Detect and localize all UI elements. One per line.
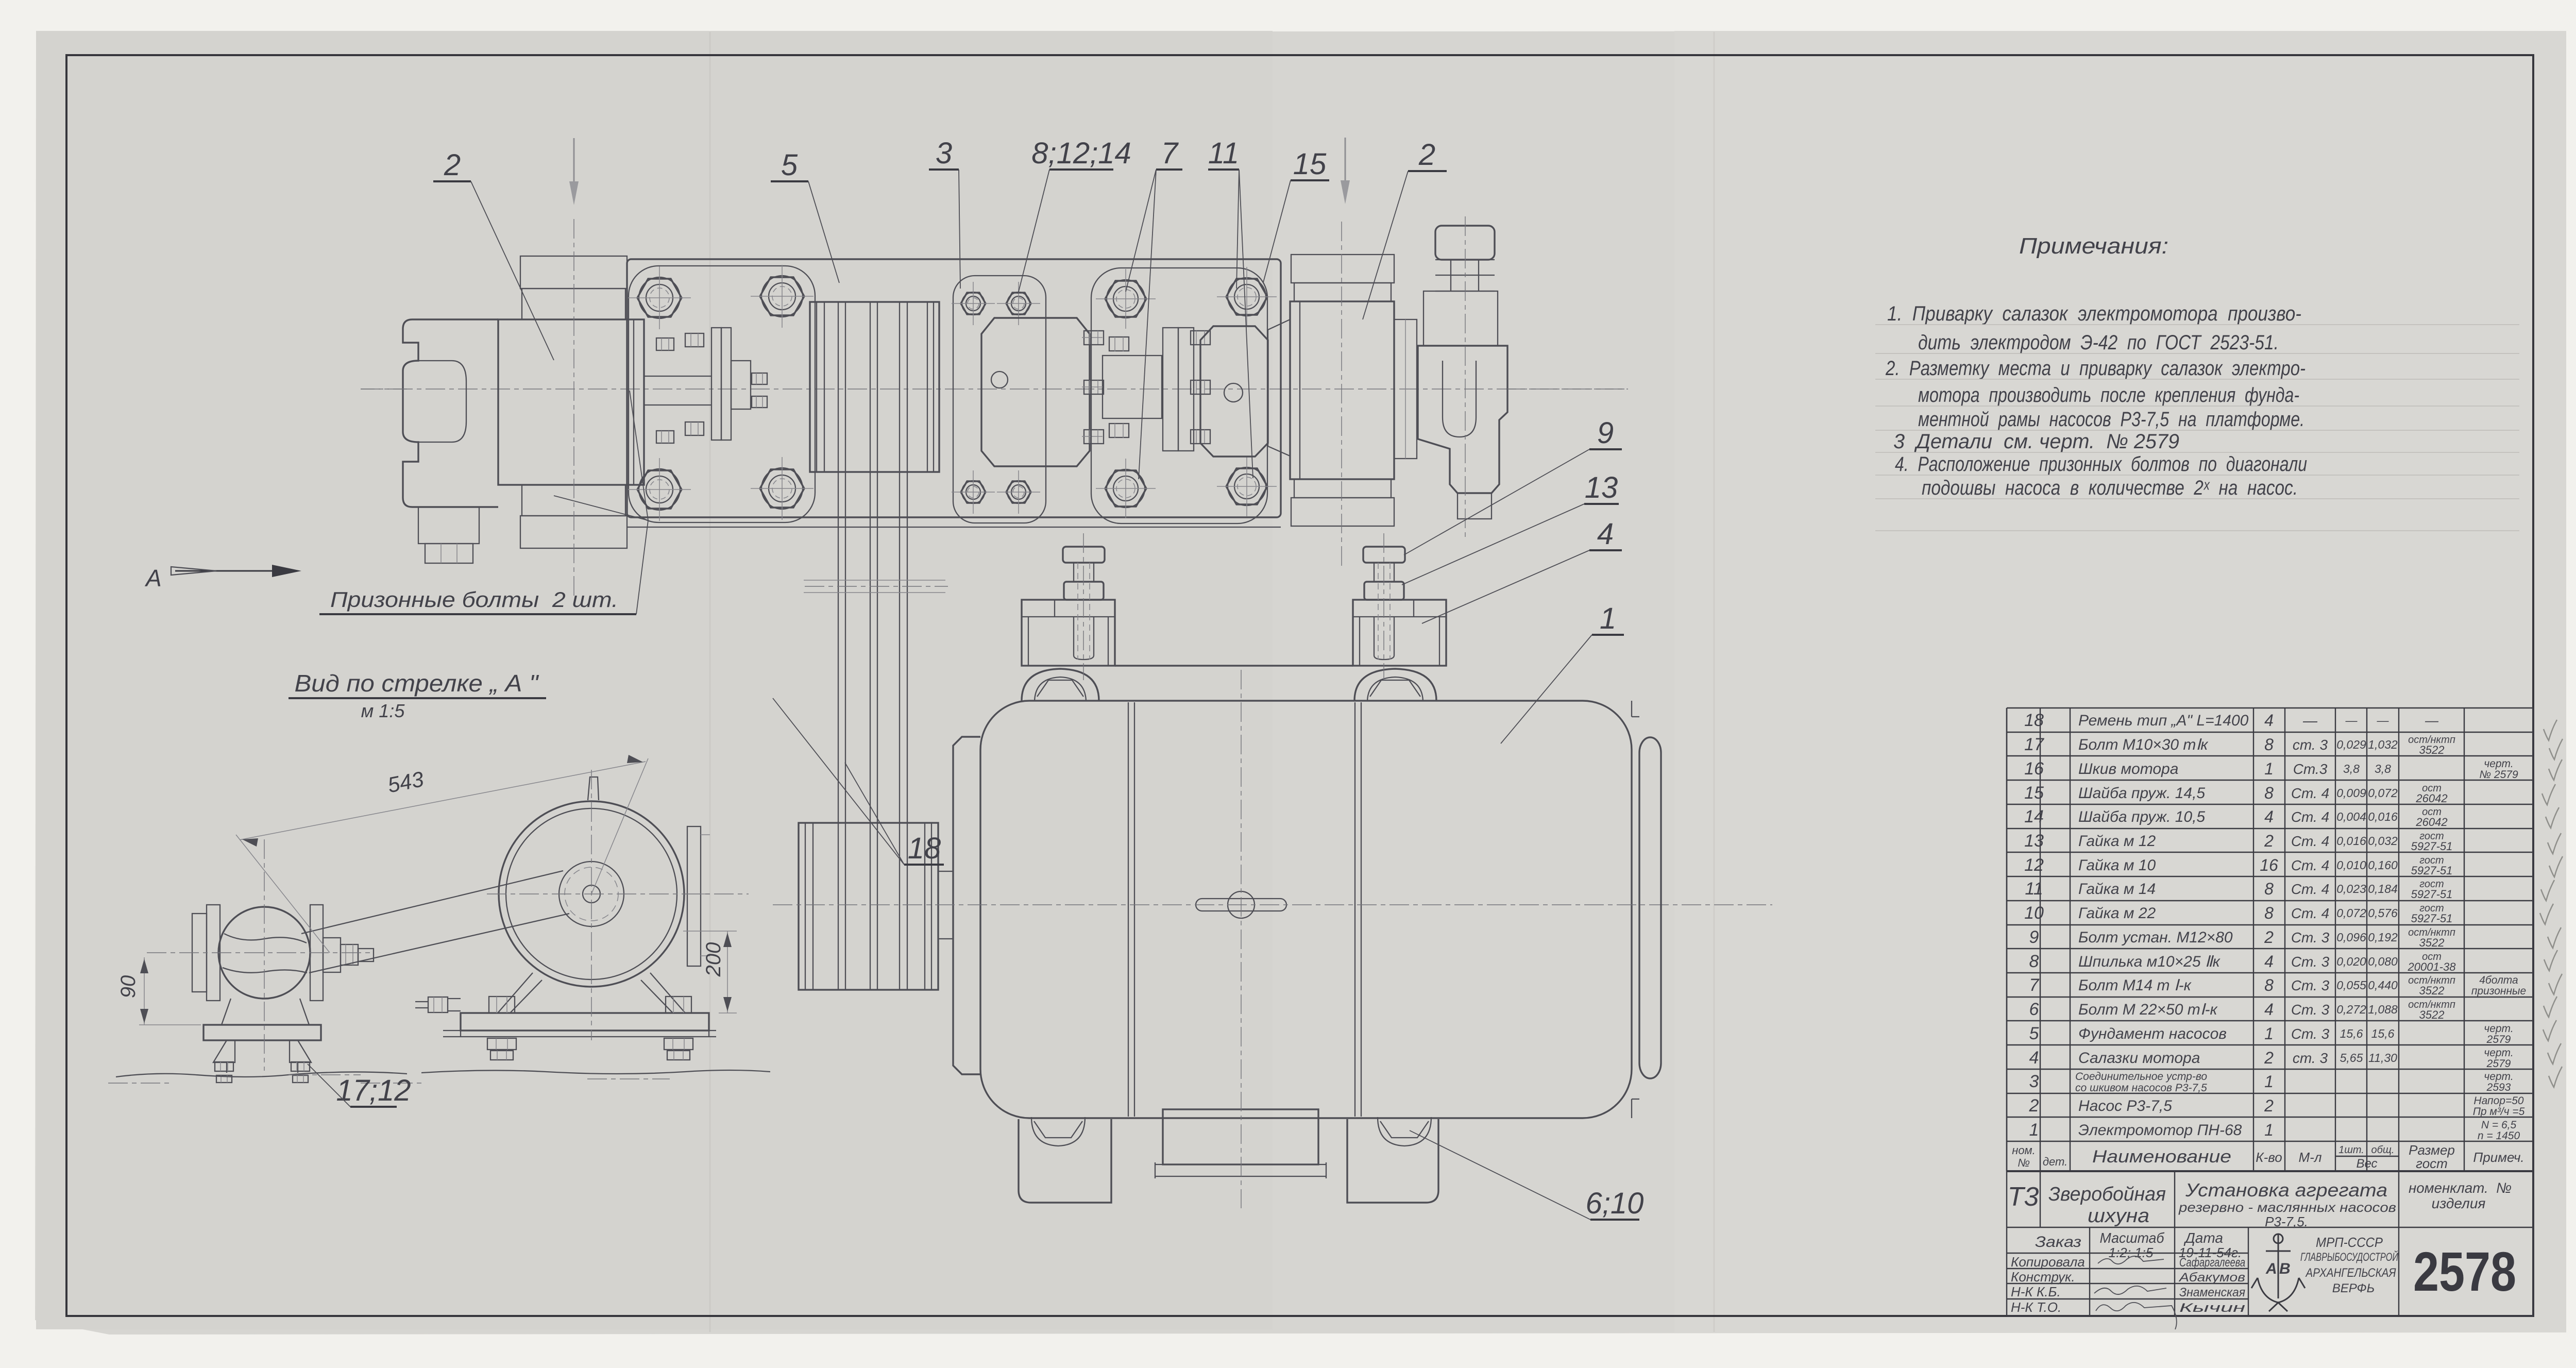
svg-text:3,8: 3,8: [2375, 762, 2391, 775]
svg-text:3: 3: [936, 137, 952, 170]
svg-text:26042: 26042: [2415, 816, 2447, 829]
svg-text:№: №: [2018, 1156, 2030, 1169]
svg-text:Р3-7,5.: Р3-7,5.: [2265, 1214, 2308, 1229]
svg-text:12: 12: [2024, 855, 2044, 875]
svg-text:1: 1: [1600, 602, 1616, 635]
svg-text:0,072: 0,072: [2336, 906, 2366, 920]
svg-text:2579: 2579: [2486, 1058, 2511, 1070]
svg-text:Кычин: Кычин: [2179, 1301, 2245, 1315]
svg-text:Насос Р3-7,5: Насос Р3-7,5: [2078, 1097, 2172, 1114]
svg-text:26042: 26042: [2415, 792, 2447, 805]
svg-text:5,65: 5,65: [2340, 1051, 2363, 1065]
svg-text:Знаменская: Знаменская: [2179, 1286, 2245, 1299]
svg-text:4: 4: [2029, 1048, 2039, 1068]
svg-text:подошвы насоса в количестве: подошвы насоса в количестве 2ˣ на насос.: [1922, 477, 2298, 499]
svg-text:0,055: 0,055: [2336, 978, 2366, 992]
svg-text:М-л: М-л: [2299, 1150, 2322, 1165]
svg-text:8: 8: [2029, 952, 2039, 971]
svg-text:0,016: 0,016: [2368, 810, 2398, 823]
svg-text:Ст. 4: Ст. 4: [2291, 905, 2329, 921]
svg-text:номенклат. №: номенклат. №: [2409, 1180, 2512, 1196]
svg-text:общ.: общ.: [2371, 1144, 2395, 1156]
svg-text:—: —: [2425, 713, 2439, 728]
svg-text:Вес: Вес: [2356, 1157, 2377, 1171]
svg-text:11,30: 11,30: [2368, 1051, 2397, 1065]
svg-text:Ст. 3: Ст. 3: [2291, 1002, 2330, 1018]
svg-text:2. Разметку места и привар: 2. Разметку места и приварку салазок эле…: [1885, 357, 2306, 380]
svg-text:0,440: 0,440: [2368, 978, 2398, 992]
svg-text:Наименование: Наименование: [2092, 1147, 2231, 1167]
svg-text:№ 2579: № 2579: [2479, 769, 2518, 781]
svg-text:0,010: 0,010: [2336, 858, 2366, 872]
svg-text:Примечания:: Примечания:: [2019, 233, 2168, 259]
svg-text:Фундамент насосов: Фундамент насосов: [2078, 1025, 2227, 1042]
svg-text:черт.: черт.: [2484, 758, 2513, 770]
svg-text:со шкивом насосов Р3-7,5: со шкивом насосов Р3-7,5: [2075, 1082, 2207, 1094]
svg-text:Т3: Т3: [2008, 1182, 2039, 1212]
svg-text:4: 4: [2264, 952, 2274, 971]
svg-text:Дата: Дата: [2183, 1230, 2223, 1246]
svg-text:15: 15: [1293, 147, 1327, 181]
svg-text:резервно - маслянных насосов: резервно - маслянных насосов: [2178, 1200, 2396, 1215]
svg-text:15,6: 15,6: [2371, 1027, 2395, 1040]
svg-text:3522: 3522: [2419, 984, 2445, 997]
svg-text:16: 16: [2260, 856, 2278, 874]
svg-text:Болт М 22×50 тⅠ-к: Болт М 22×50 тⅠ-к: [2078, 1001, 2218, 1018]
svg-text:2593: 2593: [2486, 1082, 2511, 1093]
svg-text:6: 6: [2029, 1000, 2039, 1019]
svg-text:2: 2: [2264, 832, 2274, 850]
svg-text:16: 16: [2024, 759, 2044, 779]
svg-text:Пр м³/ч =5: Пр м³/ч =5: [2473, 1106, 2525, 1118]
svg-text:3522: 3522: [2419, 936, 2445, 949]
svg-text:Болт М10×30 тⅠк: Болт М10×30 тⅠк: [2078, 736, 2209, 753]
svg-text:7: 7: [1161, 137, 1179, 170]
svg-text:4: 4: [2264, 807, 2274, 826]
svg-text:—: —: [2377, 714, 2389, 727]
svg-text:1,088: 1,088: [2368, 1003, 2398, 1016]
svg-text:черт.: черт.: [2484, 1023, 2513, 1035]
svg-text:0,576: 0,576: [2368, 906, 2398, 920]
svg-text:7: 7: [2029, 975, 2040, 995]
svg-text:м 1:5: м 1:5: [361, 700, 405, 721]
svg-text:изделия: изделия: [2432, 1195, 2486, 1211]
svg-text:1,032: 1,032: [2368, 738, 2398, 751]
svg-text:Напор=50: Напор=50: [2473, 1095, 2523, 1107]
svg-text:10: 10: [2024, 903, 2044, 923]
svg-text:4: 4: [2264, 711, 2274, 730]
svg-text:3: 3: [2029, 1072, 2039, 1091]
svg-text:2: 2: [2264, 928, 2274, 947]
svg-text:15: 15: [2024, 783, 2044, 803]
svg-text:Шкив мотора: Шкив мотора: [2078, 761, 2178, 778]
svg-text:2578: 2578: [2413, 1240, 2516, 1303]
svg-text:5927-51: 5927-51: [2411, 912, 2453, 925]
svg-text:5: 5: [781, 148, 798, 182]
svg-text:0,272: 0,272: [2336, 1003, 2366, 1016]
svg-text:Ст.3: Ст.3: [2293, 761, 2328, 777]
svg-text:ст. 3: ст. 3: [2293, 1050, 2328, 1066]
svg-text:1: 1: [2029, 1120, 2039, 1140]
svg-text:Зверобойная: Зверобойная: [2048, 1184, 2166, 1205]
svg-text:Шпилька м10×25 Ⅱк: Шпилька м10×25 Ⅱк: [2078, 953, 2221, 970]
svg-text:90: 90: [117, 975, 140, 999]
svg-text:1шт.: 1шт.: [2338, 1144, 2364, 1156]
svg-text:Ст. 4: Ст. 4: [2291, 809, 2329, 825]
svg-text:0,032: 0,032: [2368, 834, 2398, 848]
svg-text:0,096: 0,096: [2336, 931, 2366, 944]
svg-text:А: А: [144, 565, 162, 592]
svg-text:Ст. 4: Ст. 4: [2291, 833, 2329, 849]
svg-text:Ст. 3: Ст. 3: [2291, 977, 2330, 993]
svg-text:9: 9: [1597, 416, 1614, 450]
svg-text:Шайба пруж. 14,5: Шайба пруж. 14,5: [2078, 785, 2205, 802]
svg-text:Гайка м 12: Гайка м 12: [2078, 833, 2156, 850]
svg-text:Ст. 3: Ст. 3: [2291, 1026, 2330, 1042]
svg-text:3,8: 3,8: [2343, 762, 2360, 775]
svg-text:Электромотор ПН-68: Электромотор ПН-68: [2078, 1122, 2242, 1139]
svg-text:Конструк.: Конструк.: [2011, 1269, 2075, 1285]
svg-text:0,023: 0,023: [2336, 882, 2366, 896]
svg-text:ВЕРФЬ: ВЕРФЬ: [2332, 1281, 2375, 1295]
svg-text:МРП-СССР: МРП-СССР: [2316, 1235, 2383, 1250]
svg-text:4: 4: [2264, 1000, 2274, 1019]
svg-text:Ст. 4: Ст. 4: [2291, 857, 2329, 873]
svg-text:0,016: 0,016: [2336, 834, 2366, 848]
svg-text:17: 17: [2024, 735, 2044, 754]
svg-text:13: 13: [2024, 831, 2044, 851]
svg-text:8: 8: [2264, 976, 2274, 994]
svg-text:Гайка м 22: Гайка м 22: [2078, 905, 2156, 922]
svg-text:призонные: призонные: [2471, 985, 2526, 997]
svg-text:1: 1: [2264, 759, 2274, 778]
svg-text:n = 1450: n = 1450: [2478, 1130, 2520, 1142]
svg-text:АРХАНГЕЛЬСКАЯ: АРХАНГЕЛЬСКАЯ: [2305, 1266, 2396, 1280]
svg-text:Ст. 4: Ст. 4: [2291, 785, 2329, 801]
svg-text:1: 1: [2264, 1121, 2274, 1139]
svg-text:Ст. 4: Ст. 4: [2291, 881, 2329, 897]
svg-text:ном.: ном.: [2012, 1144, 2036, 1157]
svg-text:4болта: 4болта: [2479, 974, 2518, 986]
svg-text:Гайка м 14: Гайка м 14: [2078, 881, 2156, 898]
svg-text:шхуна: шхуна: [2088, 1205, 2149, 1227]
svg-text:А: А: [2265, 1260, 2277, 1277]
svg-text:2: 2: [2264, 1049, 2274, 1067]
svg-text:8: 8: [2264, 784, 2274, 802]
svg-text:дить электродом Э-42 по ГО: дить электродом Э-42 по ГОСТ 2523-51.: [1918, 331, 2279, 354]
svg-text:мотора производить после кр: мотора производить после крепления фунда…: [1918, 384, 2299, 407]
svg-text:0,160: 0,160: [2368, 858, 2398, 872]
svg-text:—: —: [2302, 713, 2318, 729]
svg-text:15,6: 15,6: [2340, 1027, 2363, 1040]
svg-text:2: 2: [1418, 138, 1435, 172]
svg-text:3522: 3522: [2419, 744, 2445, 756]
svg-text:0,029: 0,029: [2336, 738, 2366, 751]
svg-text:—: —: [2345, 714, 2358, 727]
svg-text:черт.: черт.: [2484, 1071, 2513, 1083]
svg-text:20001-38: 20001-38: [2408, 960, 2456, 973]
svg-text:18: 18: [2024, 711, 2044, 730]
svg-text:4. Расположение призонных б: 4. Расположение призонных болтов по диаг…: [1895, 453, 2307, 476]
svg-text:5927-51: 5927-51: [2411, 864, 2453, 877]
svg-text:Ремень тип „А" L=1400: Ремень тип „А" L=1400: [2078, 712, 2249, 729]
svg-text:N = 6,5: N = 6,5: [2481, 1119, 2517, 1131]
svg-text:Заказ: Заказ: [2035, 1234, 2081, 1251]
svg-text:2: 2: [444, 148, 461, 182]
svg-text:4: 4: [1597, 517, 1614, 551]
svg-text:ГЛАВРЫБОСУДОСТРОЙ: ГЛАВРЫБОСУДОСТРОЙ: [2300, 1250, 2398, 1263]
svg-text:Гайка м 10: Гайка м 10: [2078, 857, 2156, 874]
svg-text:дет.: дет.: [2043, 1155, 2067, 1168]
svg-text:1:2; 1:5: 1:2; 1:5: [2109, 1245, 2154, 1260]
svg-text:Н-К К.Б.: Н-К К.Б.: [2011, 1284, 2061, 1299]
svg-text:18: 18: [908, 832, 941, 865]
svg-text:5927-51: 5927-51: [2411, 888, 2453, 901]
svg-text:Масштаб: Масштаб: [2100, 1230, 2165, 1246]
svg-text:К-во: К-во: [2256, 1150, 2282, 1165]
svg-text:2: 2: [2264, 1096, 2274, 1115]
svg-text:гост: гост: [2416, 1156, 2448, 1171]
svg-text:3522: 3522: [2419, 1008, 2445, 1021]
svg-text:0,072: 0,072: [2368, 786, 2398, 800]
svg-text:Вид по стрелке „ А ": Вид по стрелке „ А ": [295, 670, 540, 697]
svg-text:8: 8: [2264, 904, 2274, 922]
svg-text:5927-51: 5927-51: [2411, 840, 2453, 853]
svg-text:0,080: 0,080: [2368, 955, 2398, 968]
svg-text:Салазки мотора: Салазки мотора: [2078, 1050, 2200, 1067]
svg-text:Шайба пруж. 10,5: Шайба пруж. 10,5: [2078, 808, 2205, 825]
svg-text:8: 8: [2264, 735, 2274, 754]
svg-text:Установка агрегата: Установка агрегата: [2185, 1179, 2387, 1201]
svg-text:Ст. 3: Ст. 3: [2291, 954, 2330, 970]
svg-text:8;12;14: 8;12;14: [1031, 137, 1131, 170]
svg-text:0,004: 0,004: [2336, 810, 2366, 823]
svg-text:Н-К Т.О.: Н-К Т.О.: [2011, 1299, 2061, 1315]
svg-text:ментной рамы насосов Р3-7,5: ментной рамы насосов Р3-7,5 на платформе…: [1918, 408, 2304, 431]
svg-text:200: 200: [702, 942, 725, 977]
svg-text:ст. 3: ст. 3: [2293, 737, 2328, 753]
svg-text:13: 13: [1585, 471, 1618, 504]
svg-text:Абакумов: Абакумов: [2178, 1271, 2245, 1285]
svg-text:Копировала: Копировала: [2011, 1254, 2085, 1270]
svg-text:0,020: 0,020: [2336, 955, 2366, 968]
svg-text:В: В: [2279, 1260, 2291, 1277]
svg-text:Ст. 3: Ст. 3: [2291, 930, 2330, 945]
svg-text:Соединительное устр-во: Соединительное устр-во: [2075, 1071, 2207, 1083]
svg-text:1: 1: [2264, 1024, 2274, 1043]
svg-text:0,184: 0,184: [2368, 882, 2398, 896]
svg-text:9: 9: [2029, 927, 2039, 947]
svg-text:5: 5: [2029, 1024, 2039, 1043]
svg-text:11: 11: [1208, 137, 1239, 170]
svg-text:Сафаргалеева: Сафаргалеева: [2179, 1256, 2245, 1270]
svg-text:6;10: 6;10: [1586, 1187, 1644, 1220]
svg-text:11: 11: [2025, 879, 2043, 899]
svg-text:8: 8: [2264, 880, 2274, 898]
svg-text:0,009: 0,009: [2336, 786, 2366, 800]
svg-text:Болт устан. М12×80: Болт устан. М12×80: [2078, 929, 2233, 946]
svg-text:Примеч.: Примеч.: [2473, 1150, 2524, 1165]
svg-text:1. Приварку салазок электро: 1. Приварку салазок электромотора произв…: [1887, 302, 2301, 325]
svg-text:17;12: 17;12: [336, 1074, 411, 1107]
svg-text:Призонные болты 2 шт.: Призонные болты 2 шт.: [330, 587, 618, 612]
svg-text:Болт М14 т Ⅰ-к: Болт М14 т Ⅰ-к: [2078, 977, 2192, 994]
svg-text:14: 14: [2024, 807, 2044, 826]
svg-text:0,192: 0,192: [2368, 931, 2398, 944]
svg-text:3 Детали см. черт. № 2579: 3 Детали см. черт. № 2579: [1893, 430, 2179, 453]
svg-text:2579: 2579: [2486, 1034, 2511, 1045]
svg-text:черт.: черт.: [2484, 1047, 2513, 1059]
svg-text:2: 2: [2029, 1096, 2039, 1116]
svg-text:1: 1: [2264, 1072, 2274, 1091]
